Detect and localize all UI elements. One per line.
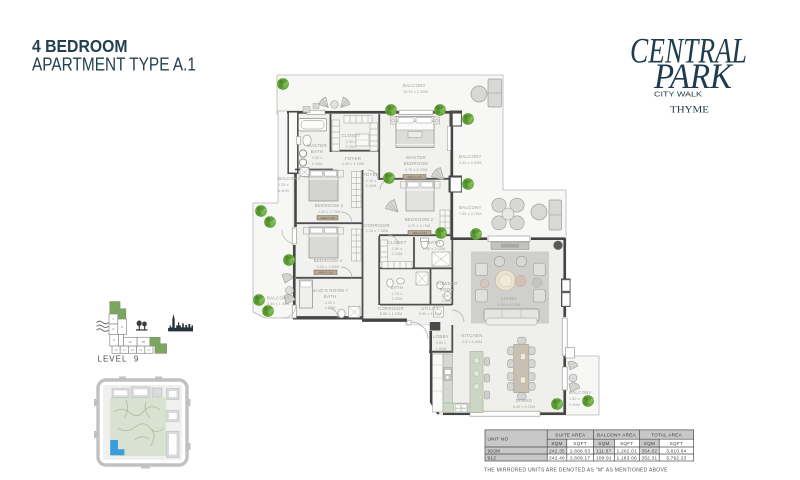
svg-text:B3: B3 xyxy=(129,340,133,344)
svg-text:THYME: THYME xyxy=(670,105,710,115)
svg-text:3,810.64: 3,810.64 xyxy=(666,448,686,453)
svg-text:BEDROOM 3: BEDROOM 3 xyxy=(315,203,344,208)
svg-text:1A: 1A xyxy=(147,348,150,352)
svg-text:6.95 x 5.40M: 6.95 x 5.40M xyxy=(498,303,521,307)
svg-text:0.90 x 1.40M: 0.90 x 1.40M xyxy=(419,312,442,316)
svg-text:CLOSET: CLOSET xyxy=(341,133,360,138)
svg-text:BB: BB xyxy=(142,340,146,344)
svg-text:MAID'S ROOM 7: MAID'S ROOM 7 xyxy=(312,288,349,293)
svg-text:AREA 0 1 2M: AREA 0 1 2M xyxy=(318,271,332,274)
svg-text:BALCONY: BALCONY xyxy=(278,176,301,181)
svg-text:LEVEL 9: LEVEL 9 xyxy=(98,355,140,364)
svg-text:4.20 x: 4.20 x xyxy=(325,301,336,305)
svg-text:SQM: SQM xyxy=(644,441,655,446)
svg-text:242.35: 242.35 xyxy=(549,448,565,453)
svg-text:APARTMENT TYPE A.1: APARTMENT TYPE A.1 xyxy=(32,55,196,75)
svg-text:1.10 x 7.00M: 1.10 x 7.00M xyxy=(366,229,389,233)
svg-text:CORRIDOR: CORRIDOR xyxy=(378,306,404,311)
svg-text:MASTER: MASTER xyxy=(307,143,327,148)
svg-text:3,792.23: 3,792.23 xyxy=(666,455,686,460)
svg-text:6.50 x 1.10M: 6.50 x 1.10M xyxy=(380,312,403,316)
svg-text:BALCONY AREA: BALCONY AREA xyxy=(597,432,637,437)
svg-text:352.31: 352.31 xyxy=(641,455,657,460)
svg-text:BALCONY: BALCONY xyxy=(459,205,482,210)
svg-text:BALCONY: BALCONY xyxy=(403,83,426,88)
svg-text:3.50 x: 3.50 x xyxy=(436,341,447,345)
svg-text:7.65 x 2.70M: 7.65 x 2.70M xyxy=(459,212,482,216)
svg-text:CORRIDOR: CORRIDOR xyxy=(364,223,390,228)
svg-text:903M: 903M xyxy=(488,448,501,453)
svg-text:SQFT: SQFT xyxy=(620,441,633,446)
svg-text:2.20M: 2.20M xyxy=(392,297,403,301)
svg-text:15.30 x 2.35M: 15.30 x 2.35M xyxy=(403,90,428,94)
svg-text:242.40: 242.40 xyxy=(549,455,565,460)
svg-text:4.70 x 4.20M: 4.70 x 4.20M xyxy=(405,168,428,172)
svg-text:3.40 x 1.10M: 3.40 x 1.10M xyxy=(342,162,365,166)
svg-text:4.70 x 3.70M: 4.70 x 3.70M xyxy=(408,224,431,228)
svg-text:2.10 x: 2.10 x xyxy=(366,179,377,183)
svg-text:SQFT: SQFT xyxy=(670,441,683,446)
svg-text:SUITE AREA: SUITE AREA xyxy=(555,432,586,437)
svg-text:2,609.17: 2,609.17 xyxy=(570,455,590,460)
svg-text:SQM: SQM xyxy=(551,441,562,446)
svg-text:4.20 x 3.70M: 4.20 x 3.70M xyxy=(318,210,341,214)
svg-text:TOTAL AREA: TOTAL AREA xyxy=(651,432,682,437)
svg-text:6.40M: 6.40M xyxy=(278,189,289,193)
svg-text:111.67: 111.67 xyxy=(596,448,611,453)
svg-text:BEDROOM: BEDROOM xyxy=(404,161,429,166)
svg-text:2.85 x 2.10M: 2.85 x 2.10M xyxy=(423,247,446,251)
svg-text:2,608.63: 2,608.63 xyxy=(570,448,590,453)
svg-text:CLOSET: CLOSET xyxy=(387,240,406,245)
svg-text:354.02: 354.02 xyxy=(641,448,657,453)
svg-text:BATH: BATH xyxy=(391,285,403,290)
svg-text:1.80 x: 1.80 x xyxy=(569,397,580,401)
svg-text:BALCONY: BALCONY xyxy=(267,296,290,301)
svg-text:3.60 x 1.35M: 3.60 x 1.35M xyxy=(267,302,290,306)
svg-text:AREA 0 1 2M: AREA 0 1 2M xyxy=(407,176,421,179)
svg-text:2.50 x: 2.50 x xyxy=(392,247,403,251)
svg-text:2.10M: 2.10M xyxy=(392,252,403,256)
svg-text:2.20M: 2.20M xyxy=(346,145,357,149)
svg-text:1.35 x: 1.35 x xyxy=(278,183,289,187)
svg-text:BATH: BATH xyxy=(311,149,323,154)
svg-text:THE MIRRORED UNITS ARE DENOTED: THE MIRRORED UNITS ARE DENOTED AS "M" AS… xyxy=(484,467,668,473)
svg-text:912: 912 xyxy=(488,455,497,460)
svg-text:BEDROOM 4: BEDROOM 4 xyxy=(314,258,343,263)
svg-text:MASTER: MASTER xyxy=(406,155,426,160)
svg-text:AREA 0 1 2M: AREA 0 1 2M xyxy=(320,217,334,220)
svg-text:CITY WALK: CITY WALK xyxy=(654,90,702,99)
svg-text:2.20M: 2.20M xyxy=(442,299,453,303)
svg-text:BEDROOM 2: BEDROOM 2 xyxy=(405,217,434,222)
svg-text:LIVING: LIVING xyxy=(501,296,517,301)
svg-text:3.5 x 4.00M: 3.5 x 4.00M xyxy=(462,340,482,344)
svg-text:FOYER: FOYER xyxy=(345,156,361,161)
svg-text:SQM: SQM xyxy=(598,441,609,446)
svg-text:FOYER: FOYER xyxy=(363,172,379,177)
svg-text:DINING: DINING xyxy=(516,398,533,403)
svg-text:109.91: 109.91 xyxy=(596,455,612,460)
svg-text:6.40M: 6.40M xyxy=(312,162,323,166)
svg-text:UNIT NO: UNIT NO xyxy=(488,437,509,442)
svg-text:5.90M: 5.90M xyxy=(569,403,580,407)
svg-text:1,183.06: 1,183.06 xyxy=(617,455,637,460)
svg-text:5.10M: 5.10M xyxy=(366,184,377,188)
svg-text:KITCHEN: KITCHEN xyxy=(461,333,482,338)
svg-text:0.70M: 0.70M xyxy=(325,306,336,310)
svg-text:1.70 x: 1.70 x xyxy=(392,292,403,296)
svg-text:BATH: BATH xyxy=(324,294,336,299)
svg-text:BALCONY: BALCONY xyxy=(569,390,592,395)
svg-text:UTILITY: UTILITY xyxy=(421,306,439,311)
svg-text:4 BEDROOM: 4 BEDROOM xyxy=(32,36,128,56)
svg-text:BATH: BATH xyxy=(428,240,440,245)
svg-text:1,202.01: 1,202.01 xyxy=(617,448,637,453)
svg-text:2.00 x: 2.00 x xyxy=(312,156,323,160)
svg-text:3.30 x: 3.30 x xyxy=(346,140,357,144)
svg-text:3.40 x 3.90M: 3.40 x 3.90M xyxy=(459,161,482,165)
svg-text:BALCONY: BALCONY xyxy=(459,154,482,159)
svg-text:5.40 x 5.20M: 5.40 x 5.20M xyxy=(513,405,536,409)
svg-text:1.50 x: 1.50 x xyxy=(442,294,453,298)
svg-text:ROOM: ROOM xyxy=(440,287,455,292)
svg-text:1.50M: 1.50M xyxy=(436,347,447,351)
svg-text:4.20 x 3.50M: 4.20 x 3.50M xyxy=(317,265,340,269)
svg-text:LOBBY: LOBBY xyxy=(433,334,449,339)
svg-text:SQFT: SQFT xyxy=(573,441,586,446)
svg-text:POWDER: POWDER xyxy=(436,281,457,286)
svg-text:AREA 0 1 2M: AREA 0 1 2M xyxy=(412,232,426,235)
